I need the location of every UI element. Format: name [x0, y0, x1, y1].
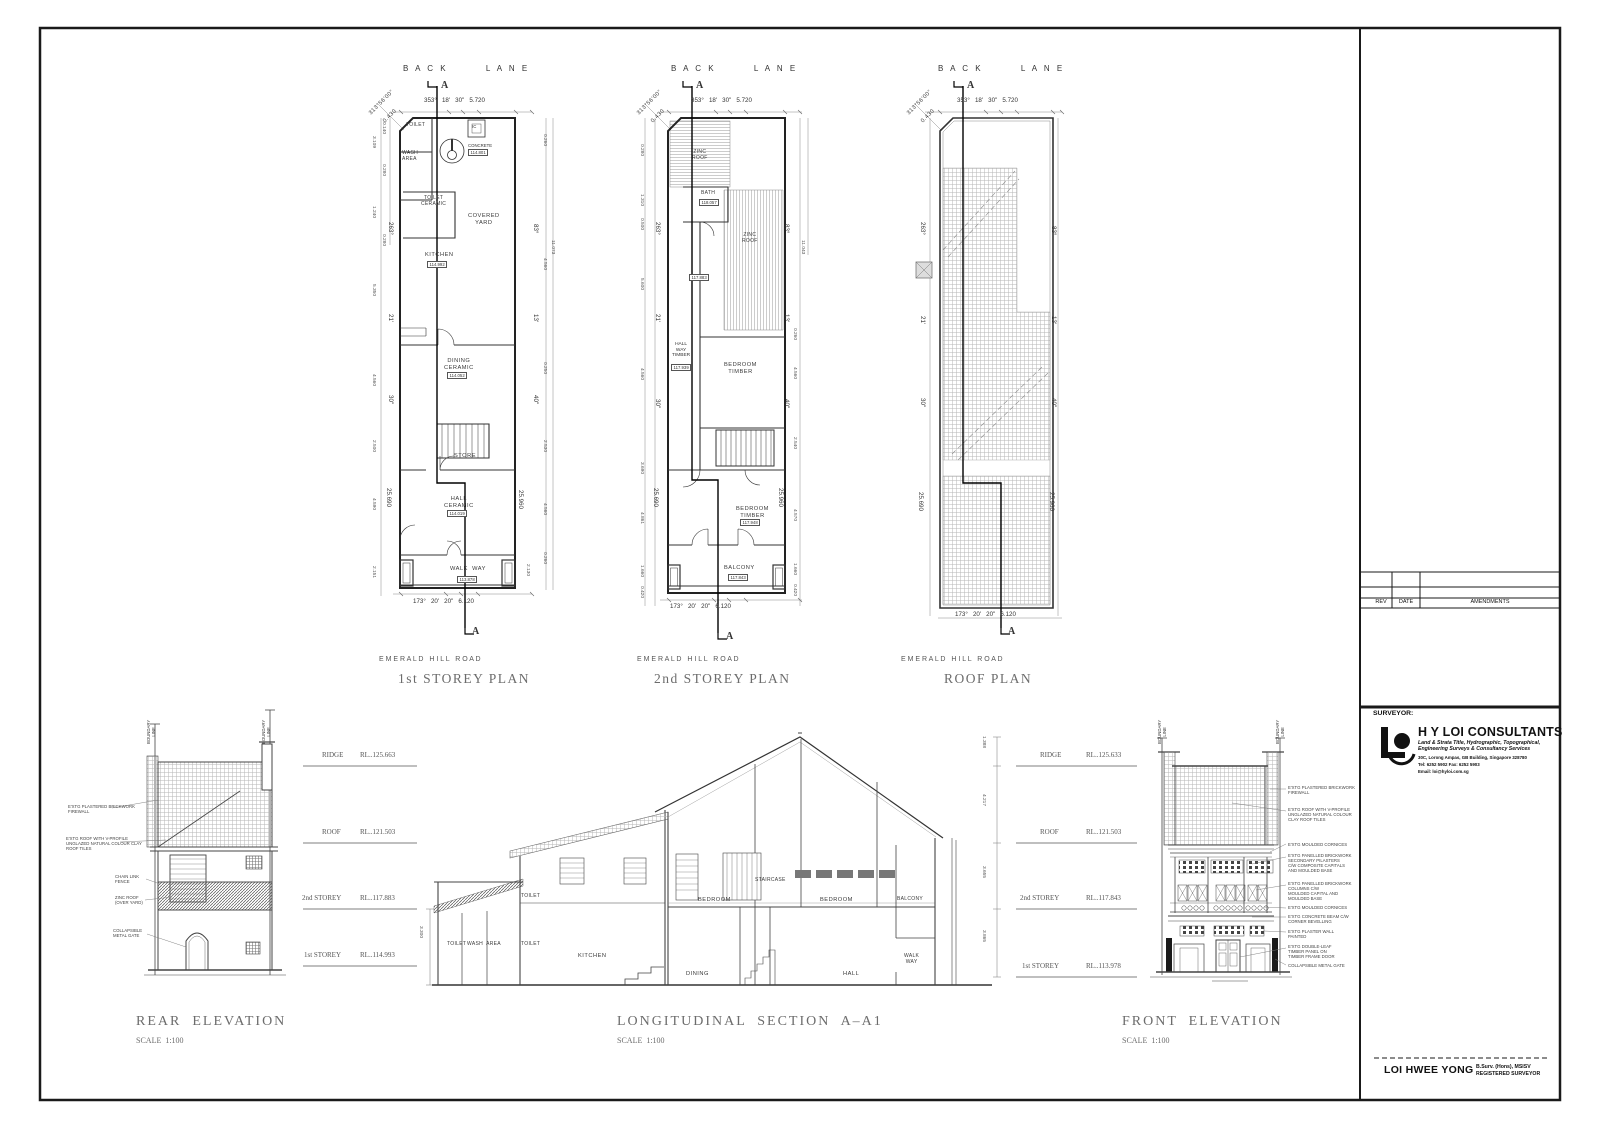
r1h-label: 2.130 — [524, 564, 530, 576]
l2b-label: 1.310 — [638, 194, 644, 206]
r2d-label: 2.540 — [791, 437, 797, 449]
p1-toil2-label: TOILET CERAMIC — [421, 196, 446, 208]
fb2-label: BOUNDARY LINE — [1275, 720, 1285, 744]
sl4n-label: 1st STOREY — [304, 951, 341, 959]
company-address: 30C, Lorong Ampas, GB Building, Singapor… — [1418, 755, 1527, 760]
r1a-label: 11.073 — [549, 240, 555, 254]
company-telfax: Tel: 6252 5902 Fax: 6252 5903 — [1418, 762, 1480, 767]
sr3v-label: RL..117.843 — [1086, 894, 1121, 902]
fa3-label: E'XTG MOULDED CORNICES — [1288, 842, 1347, 847]
p1-ic-label: IC — [472, 124, 476, 129]
sr2v-label: RL..121.503 — [1086, 828, 1121, 836]
b3h-label: 25.960 — [1048, 492, 1055, 511]
l2h-label: 1.660 — [638, 565, 644, 577]
sec-bed2-label: BEDROOM — [820, 897, 853, 904]
p2-bal-v-label: 117.843 — [728, 574, 748, 581]
p1-din-label: DINING CERAMIC — [444, 358, 474, 371]
r2e-label: 4.570 — [791, 509, 797, 521]
fa8-label: E'XTG PLASTER WALL PAINTED — [1288, 929, 1334, 939]
t-front-s-label: SCALE 1:100 — [1122, 1036, 1170, 1045]
fa9-label: E'XTG DOUBLE-LEAF TIMBER PANEL ON TIMBER… — [1288, 944, 1335, 959]
b3b-label: 21' — [919, 316, 926, 324]
sl2v-label: RL..121.503 — [360, 828, 395, 836]
ra2-label: E'XTG ROOF WITH V-PROFILE UNGLAZED NATUR… — [66, 836, 142, 851]
fa6-label: E'XTG MOULDED CORNICES — [1288, 905, 1347, 910]
road3-label: E M E R A L D H I L L R O A D — [901, 656, 1003, 664]
sec-balc-label: BALCONY — [897, 897, 923, 903]
l2a-label: 0.280 — [638, 144, 644, 156]
sl1v-label: RL..125.663 — [360, 751, 395, 759]
l1b-label: 0.140 — [380, 122, 386, 134]
p2-b1-label: BEDROOM TIMBER — [724, 362, 757, 375]
sec-toilet2-label: TOILET — [521, 942, 540, 948]
p1-ww-label: WALK WAY — [450, 566, 486, 573]
d-r4-label: 3.865 — [980, 930, 986, 942]
b2g-label: 40" — [783, 399, 790, 408]
b1g-label: 40" — [532, 395, 539, 404]
sec-hall-label: HALL — [843, 971, 859, 978]
l1i-label: 4.590 — [370, 498, 376, 510]
fa10-label: COLLAPSIBLE METAL GATE — [1288, 963, 1345, 968]
p1-cy-label: COVERED YARD — [468, 213, 500, 226]
p2-z1-label: ZINC ROOF — [692, 150, 708, 162]
pt2-label: 2nd STOREY PLAN — [654, 671, 791, 687]
sr2n-label: ROOF — [1040, 828, 1059, 836]
r2g-label: 0.420 — [791, 584, 797, 596]
drawing-sheet: B A C K L A N EB A C K L A N EB A C K L … — [0, 0, 1600, 1130]
b1f-label: 13' — [532, 314, 539, 322]
l2d-label: 5.600 — [638, 278, 644, 290]
a3t-label: A — [967, 80, 974, 92]
b3e-label: 83° — [1050, 226, 1057, 235]
b1b-label: 21' — [387, 314, 394, 322]
p2-hw-v-label: 117.939 — [671, 364, 691, 371]
sl1n-label: RIDGE — [322, 751, 343, 759]
p1-din-v-label: 114.052 — [447, 372, 467, 379]
ra4-label: ZINC ROOF (OVER YARD) — [115, 895, 143, 905]
r2b-label: 0.260 — [791, 328, 797, 340]
b3c-label: 30" — [919, 398, 926, 407]
fa4-label: E'XTG PANELLED BRICKWORK SECONDARY PILAS… — [1288, 853, 1352, 873]
company-services: Land & Strata Title, Hydrographic, Topog… — [1418, 740, 1540, 752]
sr3n-label: 2nd STOREY — [1020, 894, 1059, 902]
r1g-label: 0.260 — [541, 552, 547, 564]
b2f-label: 13' — [783, 314, 790, 322]
date-header: DATE — [1394, 599, 1418, 605]
b3f-label: 13' — [1050, 316, 1057, 324]
bl3-label: B A C K L A N E — [938, 64, 1065, 73]
a1t-label: A — [441, 80, 448, 92]
fb1-label: BOUNDARY LINE — [1157, 720, 1167, 744]
road1-label: E M E R A L D H I L L R O A D — [379, 656, 481, 664]
p1-kit-v-label: 114.992 — [427, 261, 447, 268]
ra5-label: COLLAPSIBLE METAL GATE — [113, 928, 142, 938]
rb2-label: BOUNDARY LINE — [261, 720, 271, 744]
pt1-label: 1st STOREY PLAN — [398, 671, 530, 687]
r1c-label: 4.560 — [541, 258, 547, 270]
sl4v-label: RL..114.993 — [360, 951, 395, 959]
sec-wash-label: WASH AREA — [467, 942, 501, 948]
db1-label: 173° 20' 20" 6.120 — [413, 598, 474, 605]
dt1-label: 353° 18' 30" 5.720 — [424, 97, 485, 104]
r1e-label: 2.530 — [541, 440, 547, 452]
fa1-label: E'XTG PLASTERED BRICKWORK FIREWALL — [1288, 785, 1355, 795]
sec-3300-label: 3.300 — [417, 926, 423, 938]
p1-wash-label: WASH AREA — [402, 151, 418, 163]
bl1-label: B A C K L A N E — [403, 64, 530, 73]
sr4n-label: 1st STOREY — [1022, 962, 1059, 970]
company-email: Email: loi@hyloi.com.sg — [1418, 769, 1469, 774]
l2c-label: 0.500 — [638, 218, 644, 230]
p1-kit-label: KITCHEN — [425, 252, 453, 259]
dt2-label: 353° 18' 30" 5.720 — [691, 97, 752, 104]
b2d-label: 25.690 — [652, 488, 659, 507]
b2e-label: 83° — [783, 224, 790, 233]
ra1-label: E'XTG PLASTERED BRICKWORK FIREWALL — [68, 804, 135, 814]
sec-dining-label: DINING — [686, 971, 709, 978]
p2-bal-label: BALCONY — [724, 565, 755, 572]
a2b-label: A — [726, 631, 733, 643]
company-name: H Y LOI CONSULTANTS — [1418, 725, 1563, 739]
b3a-label: 263° — [919, 222, 926, 235]
sl2n-label: ROOF — [322, 828, 341, 836]
bl2-label: B A C K L A N E — [671, 64, 798, 73]
p2-v883-label: 117.883 — [689, 274, 709, 281]
p2-z2-label: ZINC ROOF — [742, 233, 758, 245]
b3g-label: 40" — [1050, 398, 1057, 407]
registered-surveyor-name: LOI HWEE YONG — [1384, 1064, 1473, 1076]
b1c-label: 30" — [387, 395, 394, 404]
p2-b2-label: BEDROOM TIMBER — [736, 506, 769, 519]
sl3n-label: 2nd STOREY — [302, 894, 341, 902]
p2-bath-v-label: 118.057 — [699, 199, 719, 206]
sec-stair-label: STAIRCASE — [755, 878, 786, 884]
sec-kitchen-label: KITCHEN — [578, 953, 606, 960]
pt3-label: ROOF PLAN — [944, 671, 1032, 687]
brg2b-label: 0.430 — [650, 108, 667, 125]
r2f-label: 1.660 — [791, 563, 797, 575]
fa7-label: E'XTG CONCRETE BEAM C/W CORNER BEVELLING — [1288, 914, 1349, 924]
l2g-label: 4.861 — [638, 512, 644, 524]
p2-bath-label: BATH — [701, 191, 715, 197]
b1e-label: 83° — [532, 224, 539, 233]
b2a-label: 263° — [654, 222, 661, 235]
t-sec-s-label: SCALE 1:100 — [617, 1036, 665, 1045]
a2t-label: A — [696, 80, 703, 92]
dt3-label: 353° 18' 30" 5.720 — [957, 97, 1018, 104]
sr4v-label: RL..113.978 — [1086, 962, 1121, 970]
b2h-label: 25.960 — [777, 488, 784, 507]
b1a-label: 263° — [387, 222, 394, 235]
r1f-label: 4.560 — [541, 503, 547, 515]
p2-hw-label: HALL WAY TIMBER — [672, 342, 690, 359]
b1d-label: 25.690 — [385, 488, 392, 507]
sl3v-label: RL..117.883 — [360, 894, 395, 902]
a3b-label: A — [1008, 626, 1015, 638]
db2-label: 173° 20' 20" 6.120 — [670, 603, 731, 610]
db3-label: 173° 20' 20" 6.120 — [955, 611, 1016, 618]
l1h-label: 2.500 — [370, 440, 376, 452]
r1d-label: 0.250 — [541, 362, 547, 374]
p2-b2-v-label: 117.948 — [740, 519, 760, 526]
r2c-label: 4.560 — [791, 367, 797, 379]
l1g-label: 4.560 — [370, 374, 376, 386]
sr1n-label: RIDGE — [1040, 751, 1061, 759]
b3d-label: 25.690 — [917, 492, 924, 511]
t-sec-label: LONGITUDINAL SECTION A–A1 — [617, 1014, 883, 1031]
l1c-label: 0.280 — [380, 164, 386, 176]
l2e-label: 4.560 — [638, 368, 644, 380]
l1e-label: 0.280 — [380, 234, 386, 246]
p1-conc-label: CONCRETE — [468, 143, 492, 148]
b2b-label: 21' — [654, 314, 661, 322]
sec-toilet1-label: TOILET — [447, 942, 466, 948]
l2f-label: 3.690 — [638, 462, 644, 474]
rev-header: REV — [1370, 599, 1392, 605]
l2i-label: 0.420 — [638, 586, 644, 598]
l1j-label: 2.151 — [370, 566, 376, 578]
sr1v-label: RL..125.633 — [1086, 751, 1121, 759]
brg3b-label: 0.430 — [920, 108, 937, 125]
a1b-label: A — [472, 626, 479, 638]
p1-ww-v-label: 113.878 — [457, 576, 477, 583]
d-r1-label: 1.388 — [980, 736, 986, 748]
l1a-label: 3.109 — [370, 136, 376, 148]
b1h-label: 25.960 — [517, 490, 524, 509]
p1-toilet-label: TOILET — [406, 123, 425, 129]
sec-bed1-label: BEDROOM — [698, 897, 731, 904]
fa5-label: E'XTG PANELLED BRICKWORK COLUMNS C/W MOU… — [1288, 881, 1352, 901]
road2-label: E M E R A L D H I L L R O A D — [637, 656, 739, 664]
r2a-label: 11.043 — [799, 240, 805, 254]
fa2-label: E'XTG ROOF WITH V-PROFILE UNGLAZED NATUR… — [1288, 807, 1352, 822]
p1-store-label: STORE — [454, 453, 476, 460]
r1b-label: 0.260 — [541, 134, 547, 146]
l1f-label: 5.350 — [370, 284, 376, 296]
d-r3-label: 3.655 — [980, 866, 986, 878]
sec-ww-label: WALK WAY — [904, 954, 919, 966]
p1-hall-v-label: 114.019 — [447, 510, 467, 517]
p1-conc-v-label: 114.801 — [468, 149, 488, 156]
rb1-label: BOUNDARY LINE — [146, 720, 156, 744]
t-rear-s-label: SCALE 1:100 — [136, 1036, 184, 1045]
ra3-label: CHAIN LINK FENCE — [115, 874, 139, 884]
l1d-label: 1.240 — [370, 206, 376, 218]
amendments-header: AMENDMENTS — [1422, 599, 1558, 605]
t-front-label: FRONT ELEVATION — [1122, 1014, 1283, 1031]
d-r2-label: 4.217 — [980, 794, 986, 806]
sec-toilet3-label: TOILET — [521, 894, 540, 900]
b2c-label: 30" — [654, 399, 661, 408]
p1-hall-label: HALL CERAMIC — [444, 496, 474, 509]
surveyor-label: SURVEYOR: — [1373, 710, 1413, 717]
t-rear-label: REAR ELEVATION — [136, 1014, 286, 1031]
surveyor-credentials: B.Surv. (Hons), MSISV REGISTERED SURVEYO… — [1476, 1064, 1540, 1079]
labels-layer: B A C K L A N EB A C K L A N EB A C K L … — [0, 0, 1600, 1130]
